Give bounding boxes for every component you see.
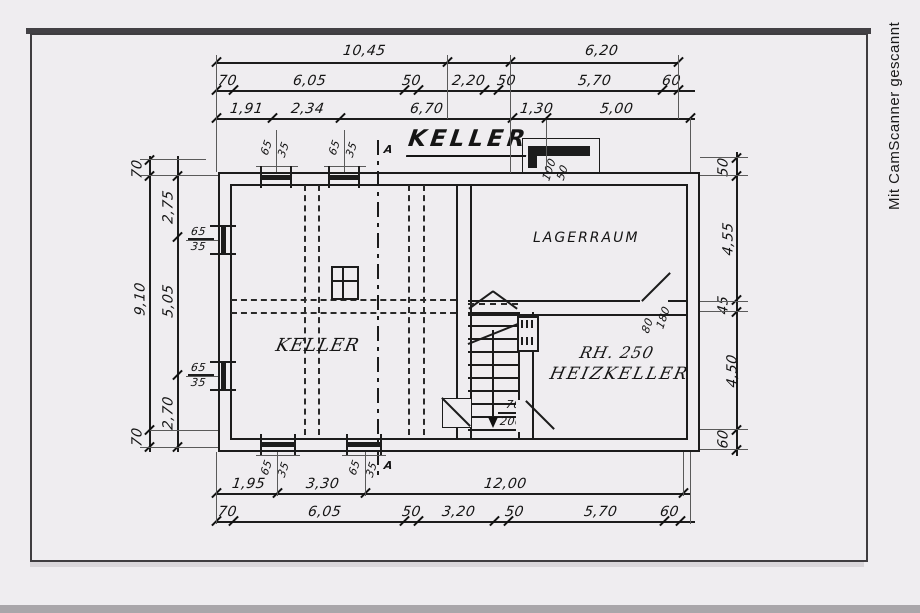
chimney-flue-divider	[331, 280, 357, 282]
window-size-label: 35	[190, 377, 207, 388]
dim-label: 5,70	[583, 505, 618, 519]
dim-line	[736, 152, 738, 456]
dim-label: 70	[217, 74, 238, 88]
dim-label: 5,70	[577, 74, 612, 88]
stair-arrow-head	[488, 417, 498, 428]
dim-line	[216, 118, 695, 120]
dim-label: 5,00	[599, 102, 634, 116]
dim-label: 6,05	[307, 505, 342, 519]
dim-line	[149, 156, 151, 452]
dim-label: 1,91	[229, 102, 264, 116]
dim-label: 2,70	[162, 395, 176, 430]
dashed-beam-line	[408, 185, 425, 435]
dim-label: 1,30	[519, 102, 554, 116]
dim-label: 60	[716, 429, 730, 450]
dim-label: 60	[659, 505, 680, 519]
scan-bottom-edge	[0, 605, 920, 613]
dim-label: 50	[496, 74, 517, 88]
dim-label: 4,50	[726, 353, 740, 388]
dim-label: 50	[401, 74, 422, 88]
room-label-keller: KELLER	[274, 337, 361, 355]
chimney	[331, 266, 359, 300]
room-label-heizkeller-height: RH. 250	[578, 345, 655, 361]
window-size-label: 65	[190, 226, 207, 237]
lightwell-fill	[528, 146, 590, 156]
scanned-floor-plan: Mit CamScanner gescannt KELLER A A	[0, 0, 920, 613]
stair-direction-arrow	[492, 330, 494, 418]
dim-label: 6,20	[584, 44, 619, 58]
dim-label: 10,45	[342, 44, 387, 58]
dim-label: 9,10	[134, 281, 148, 316]
chimney-flue	[521, 337, 523, 345]
chimney-flue	[526, 320, 528, 328]
scan-shadow	[30, 562, 864, 567]
window-size-label: 65	[190, 362, 207, 373]
dashed-beam-line	[304, 185, 320, 435]
dim-label: 3,20	[441, 505, 476, 519]
room-label-heizkeller: HEIZKELLER	[548, 366, 690, 383]
dim-line	[216, 493, 690, 495]
dim-label: 70	[130, 159, 144, 180]
window-size-label: 35	[190, 241, 207, 252]
dim-line	[216, 521, 695, 523]
dim-label: 6,70	[409, 102, 444, 116]
chimney-flue	[531, 337, 533, 345]
stair-tread	[468, 312, 518, 314]
dim-label: 1,95	[231, 477, 266, 491]
chimney-flue	[521, 320, 523, 328]
dim-label: 2,75	[162, 189, 176, 224]
camscanner-watermark: Mit CamScanner gescannt	[886, 22, 903, 210]
room-label-lagerraum: LAGERRAUM	[533, 231, 639, 245]
section-line-a	[377, 140, 379, 478]
dim-label: 6,05	[292, 74, 327, 88]
dim-label: 4,55	[722, 221, 736, 256]
section-marker: A	[383, 460, 394, 471]
dim-label: 3,30	[305, 477, 340, 491]
chimney-flue	[526, 337, 528, 345]
dim-label: 50	[504, 505, 525, 519]
stair-tread	[468, 429, 518, 431]
chimney-flue	[531, 320, 533, 328]
plan-title: KELLER	[406, 128, 530, 157]
section-marker: A	[383, 144, 394, 155]
dim-line	[216, 90, 695, 92]
dim-label: 12,00	[483, 477, 528, 491]
dim-label: 2,20	[451, 74, 486, 88]
dim-line	[177, 156, 179, 452]
dim-label: 45	[716, 295, 730, 316]
stair-landing-edge	[468, 303, 518, 307]
dim-label: 70	[217, 505, 238, 519]
dim-label: 70	[130, 427, 144, 448]
lightwell-fill	[528, 146, 537, 168]
dim-label: 5,05	[162, 283, 176, 318]
chimney-flue-divider	[342, 266, 344, 298]
dim-label: 2,34	[290, 102, 325, 116]
dim-label: 50	[401, 505, 422, 519]
